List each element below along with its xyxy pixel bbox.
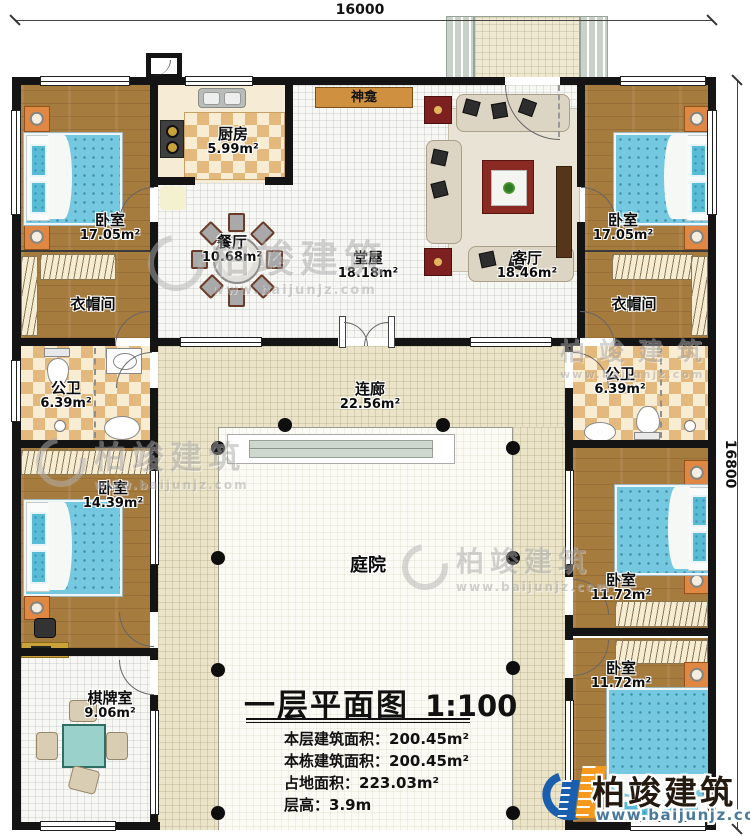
nightstand-icon xyxy=(24,106,50,132)
room-name: 庭院 xyxy=(313,556,423,576)
stat-value: 200.45m² xyxy=(389,730,469,748)
wall xyxy=(565,346,573,352)
cushion xyxy=(491,102,508,119)
room-area: 6.39m² xyxy=(11,397,121,412)
chair-icon xyxy=(228,213,245,232)
toilet-tank xyxy=(634,432,660,440)
title-underline xyxy=(246,718,470,723)
column xyxy=(506,661,520,675)
bed-pillow-area xyxy=(26,502,50,592)
room-label-dining: 餐厅 10.68m² xyxy=(177,234,287,265)
door-leaf xyxy=(558,85,560,137)
wall xyxy=(265,177,293,185)
side-table-icon xyxy=(424,96,452,124)
flue-box xyxy=(146,53,182,79)
window xyxy=(150,710,159,815)
wardrobe-icon xyxy=(21,256,38,336)
nightstand-icon xyxy=(684,662,710,688)
room-name: 卧室 xyxy=(568,212,678,229)
pillow-icon xyxy=(691,495,708,527)
nightstand-icon xyxy=(684,224,710,250)
chair-icon xyxy=(106,732,128,760)
room-name: 衣帽间 xyxy=(579,296,689,313)
sink-basin xyxy=(224,92,241,105)
stat-value: 200.45m² xyxy=(389,752,469,770)
wall xyxy=(150,565,158,612)
wall xyxy=(158,177,195,185)
room-name: 厨房 xyxy=(178,126,288,143)
room-label-courtyard: 庭院 xyxy=(313,556,423,576)
window xyxy=(565,470,574,565)
bed-icon xyxy=(615,485,712,575)
bed-sheet xyxy=(48,502,72,590)
stat-label: 本层建筑面积： xyxy=(284,730,389,748)
stat-row: 层高：3.9m xyxy=(284,794,469,816)
window xyxy=(11,110,21,215)
wall xyxy=(394,338,470,346)
room-area: 11.72m² xyxy=(566,677,676,692)
dimension-line-top xyxy=(15,20,712,21)
pillow-icon xyxy=(30,181,47,214)
wardrobe-icon xyxy=(612,254,694,280)
room-name: 卧室 xyxy=(566,660,676,677)
courtyard-edge-right xyxy=(512,427,513,830)
door-leaf xyxy=(388,316,395,348)
lamp-glow xyxy=(160,186,186,210)
pillow-icon xyxy=(691,531,708,563)
chair-icon xyxy=(228,288,245,307)
column xyxy=(506,441,520,455)
column xyxy=(506,806,520,820)
room-name: 餐厅 xyxy=(177,234,287,251)
room-name: 卧室 xyxy=(58,480,168,497)
window xyxy=(185,76,253,86)
pillow-icon xyxy=(690,144,707,177)
room-label-bedroom-ml: 卧室 14.39m² xyxy=(58,480,168,511)
column xyxy=(278,418,292,432)
porch-steps-left xyxy=(446,16,474,78)
window xyxy=(40,76,130,86)
floor-drain-icon xyxy=(684,420,696,432)
wall xyxy=(150,388,158,470)
sink-basin xyxy=(203,92,220,105)
room-area: 17.05m² xyxy=(55,229,165,244)
room-area: 5.99m² xyxy=(178,143,288,158)
stat-label: 本栋建筑面积： xyxy=(284,752,389,770)
nightstand-icon xyxy=(24,224,50,250)
window xyxy=(470,337,552,347)
room-area: 9.06m² xyxy=(55,707,165,722)
partition xyxy=(21,250,150,252)
room-name: 堂屋 xyxy=(313,250,423,267)
wall xyxy=(12,440,158,448)
chair-icon xyxy=(36,732,58,760)
porch-platform xyxy=(474,16,580,78)
room-area: 18.18m² xyxy=(313,267,423,282)
wardrobe-icon xyxy=(40,254,116,280)
coffee-table-icon xyxy=(482,160,534,214)
room-name: 公卫 xyxy=(565,366,675,383)
room-label-chess: 棋牌室 9.06m² xyxy=(55,690,165,721)
toilet-tank xyxy=(44,348,70,357)
column xyxy=(211,806,225,820)
toilet-icon xyxy=(636,406,660,434)
wall xyxy=(150,338,180,346)
room-name: 客厅 xyxy=(472,250,582,267)
nightstand-icon xyxy=(24,596,50,620)
desk-chair-icon xyxy=(34,618,56,638)
partition xyxy=(585,250,708,252)
bed-pillow-area xyxy=(26,135,50,221)
nightstand-icon xyxy=(684,460,710,486)
bed-icon xyxy=(24,500,122,596)
wall xyxy=(150,85,158,187)
room-name: 连廊 xyxy=(315,381,425,398)
room-area: 6.39m² xyxy=(565,383,675,398)
stat-row: 占地面积：223.03m² xyxy=(284,772,469,794)
column xyxy=(211,551,225,565)
room-area: 10.68m² xyxy=(177,251,287,266)
room-label-cloak-left: 衣帽间 xyxy=(38,296,148,313)
stat-label: 占地面积： xyxy=(284,774,359,792)
wall xyxy=(565,440,716,448)
room-label-bath-left: 公卫 6.39m² xyxy=(11,380,121,411)
courtyard-steps-line xyxy=(249,448,433,449)
stat-value: 223.03m² xyxy=(359,774,439,792)
room-name: 卧室 xyxy=(566,572,676,589)
room-label-cloak-right: 衣帽间 xyxy=(579,296,689,313)
room-area: 18.46m² xyxy=(472,267,582,282)
window xyxy=(707,110,717,215)
bed-pillow-area xyxy=(688,487,710,571)
side-table-icon xyxy=(424,248,452,276)
plant-icon xyxy=(503,182,515,194)
column xyxy=(436,418,450,432)
stat-row: 本栋建筑面积：200.45m² xyxy=(284,750,469,772)
dimension-top-value: 16000 xyxy=(310,2,410,18)
wall xyxy=(12,338,115,346)
room-name: 衣帽间 xyxy=(38,296,148,313)
bed-sheet xyxy=(48,135,72,219)
pillow-icon xyxy=(30,512,47,546)
logo-website: www.baijunjz.com xyxy=(596,806,750,824)
shrine-label: 神龛 xyxy=(351,90,377,105)
bed-sheet xyxy=(668,487,690,569)
room-label-bedroom-mr: 卧室 11.72m² xyxy=(566,572,676,603)
room-label-corridor: 连廊 22.56m² xyxy=(315,381,425,412)
wall xyxy=(577,85,585,187)
wall xyxy=(565,628,716,636)
pillow-icon xyxy=(30,144,47,177)
wall xyxy=(615,338,716,346)
room-area: 11.72m² xyxy=(566,589,676,604)
dimension-right-value: 16800 xyxy=(722,429,738,499)
window xyxy=(620,76,706,86)
stat-value: 3.9m xyxy=(329,796,371,814)
bed-sheet xyxy=(664,135,688,219)
company-logo: 柏竣建筑 www.baijunjz.com xyxy=(540,764,750,832)
flue-curve xyxy=(153,60,171,76)
wardrobe-icon xyxy=(21,450,150,475)
wardrobe-icon xyxy=(615,601,708,627)
cushion xyxy=(431,149,449,167)
window xyxy=(40,821,116,831)
courtyard-edge-top xyxy=(218,427,513,428)
room-area: 17.05m² xyxy=(568,229,678,244)
chess-table-icon xyxy=(62,724,106,768)
room-label-bedroom-br: 卧室 11.72m² xyxy=(566,660,676,691)
room-name: 公卫 xyxy=(11,380,121,397)
column xyxy=(211,441,225,455)
wall xyxy=(262,338,338,346)
porch-steps-right xyxy=(580,16,608,78)
entry-gap xyxy=(505,77,560,85)
room-label-hall: 堂屋 18.18m² xyxy=(313,250,423,281)
room-area: 14.39m² xyxy=(58,497,168,512)
room-label-bedroom-tl: 卧室 17.05m² xyxy=(55,212,165,243)
kitchen-sink-icon xyxy=(198,88,246,108)
courtyard-steps-band xyxy=(249,440,433,458)
basin-icon xyxy=(104,416,140,440)
wall xyxy=(565,388,573,470)
room-name: 卧室 xyxy=(55,212,165,229)
room-label-living: 客厅 18.46m² xyxy=(472,250,582,281)
floor-drain-icon xyxy=(54,420,66,432)
wardrobe-icon xyxy=(691,256,708,336)
wall xyxy=(150,815,158,830)
stat-label: 层高： xyxy=(284,796,329,814)
shrine: 神龛 xyxy=(315,87,413,108)
window xyxy=(180,337,262,347)
column xyxy=(211,663,225,677)
room-label-kitchen: 厨房 5.99m² xyxy=(178,126,288,157)
pillow-icon xyxy=(30,550,47,584)
room-area: 22.56m² xyxy=(315,398,425,413)
wall xyxy=(552,338,580,346)
room-label-bedroom-tr: 卧室 17.05m² xyxy=(568,212,678,243)
room-name: 棋牌室 xyxy=(55,690,165,707)
basin-icon xyxy=(584,422,616,442)
room-label-bath-right: 公卫 6.39m² xyxy=(565,366,675,397)
wall xyxy=(12,648,158,656)
plan-stats: 本层建筑面积：200.45m² 本栋建筑面积：200.45m² 占地面积：223… xyxy=(284,728,469,816)
column xyxy=(506,551,520,565)
stat-row: 本层建筑面积：200.45m² xyxy=(284,728,469,750)
pillow-icon xyxy=(690,181,707,214)
floor-plan: 神龛 xyxy=(0,0,750,836)
courtyard-edge-left xyxy=(218,427,219,830)
